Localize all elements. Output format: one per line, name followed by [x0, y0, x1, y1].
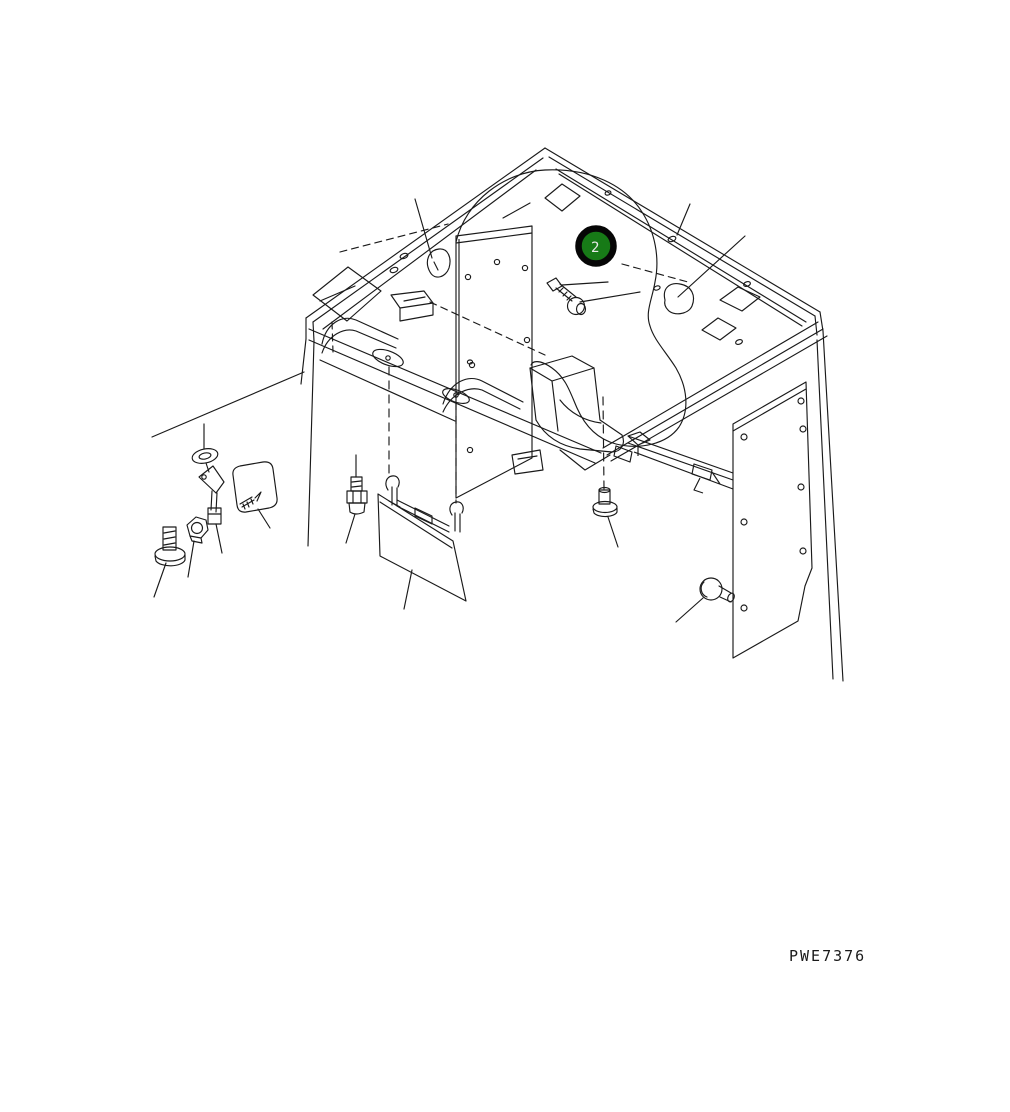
steering-column — [512, 356, 623, 474]
callout-balloon-2[interactable]: 2 — [579, 229, 614, 264]
side-panel — [733, 382, 812, 658]
hanging-plate — [378, 494, 466, 601]
bolt-part-left — [154, 527, 185, 597]
bolt-part-under-floor — [593, 488, 618, 548]
hardware-right-cluster — [547, 278, 736, 622]
side-panel-assembly — [614, 382, 812, 658]
washer-part — [191, 424, 219, 472]
grommet-part — [676, 578, 736, 622]
plug-bolt-part — [346, 455, 367, 543]
nut-part — [187, 517, 208, 577]
balloon-label: 2 — [591, 240, 599, 256]
right-pillar-edge — [823, 331, 843, 681]
drawing-code: PWE7376 — [789, 947, 866, 965]
left-pillar-edge — [308, 341, 314, 546]
hardware-left-cluster — [152, 372, 304, 597]
plate-with-screw-part — [233, 462, 277, 528]
parts-diagram-page: 2 PWE7376 — [0, 0, 1010, 1112]
hanging-plate-assembly — [346, 455, 466, 609]
parts-diagram: 2 PWE7376 — [0, 0, 1010, 1112]
bracket-rod-part — [199, 466, 224, 553]
